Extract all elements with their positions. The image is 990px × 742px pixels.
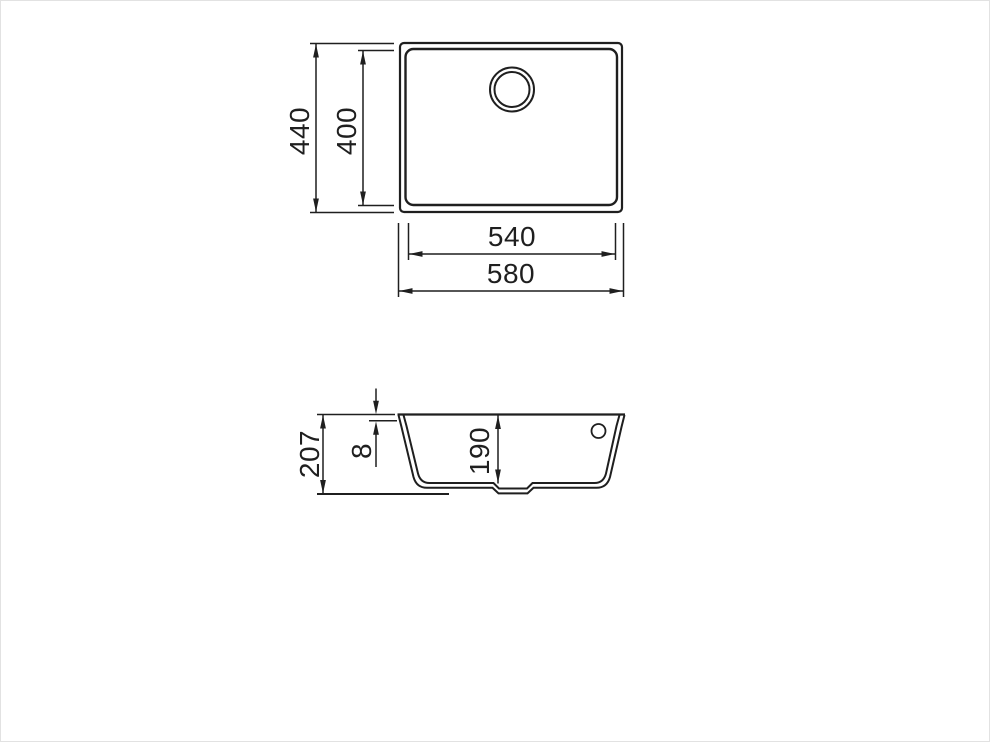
arrow-400-down-icon [360,192,366,206]
arrow-440-down-icon [313,199,319,213]
arrow-190-down-icon [495,470,501,484]
top-view [400,43,622,212]
arrow-540-left-icon [409,251,423,257]
arrow-207-down-icon [320,480,326,494]
top-view-arrowheads [313,44,623,294]
arrow-400-up-icon [360,51,366,65]
dim-label-outer-width: 580 [487,258,535,289]
section-inner-profile [404,415,620,489]
arrow-580-right-icon [610,288,624,294]
top-view-dimension-labels: 440 400 540 580 [284,107,536,289]
overflow-hole-circle [592,424,606,438]
section-view-dimension-labels: 207 8 190 [294,427,495,478]
arrow-580-left-icon [399,288,413,294]
drawing-canvas: 440 400 540 580 [0,0,990,742]
drain-hole-inner-circle [495,72,530,107]
dim-label-inner-width: 540 [488,221,536,252]
arrow-8-down-icon [373,401,379,414]
arrow-190-up-icon [495,416,501,430]
arrow-8-up-icon [373,421,379,434]
arrow-440-up-icon [313,44,319,58]
arrow-207-up-icon [320,415,326,429]
dim-label-rim-thickness: 8 [346,443,377,459]
section-view [398,415,626,494]
dim-label-inner-height: 400 [331,107,362,155]
drain-hole-outer-circle [490,68,534,112]
arrow-540-right-icon [602,251,616,257]
dim-label-outer-height: 440 [284,107,315,155]
dim-label-overall-depth: 207 [294,430,325,478]
section-outer-profile [399,415,625,493]
sink-dimension-drawing: 440 400 540 580 [1,1,989,741]
top-view-dimension-lines [310,44,624,298]
dim-label-bowl-depth: 190 [464,427,495,475]
